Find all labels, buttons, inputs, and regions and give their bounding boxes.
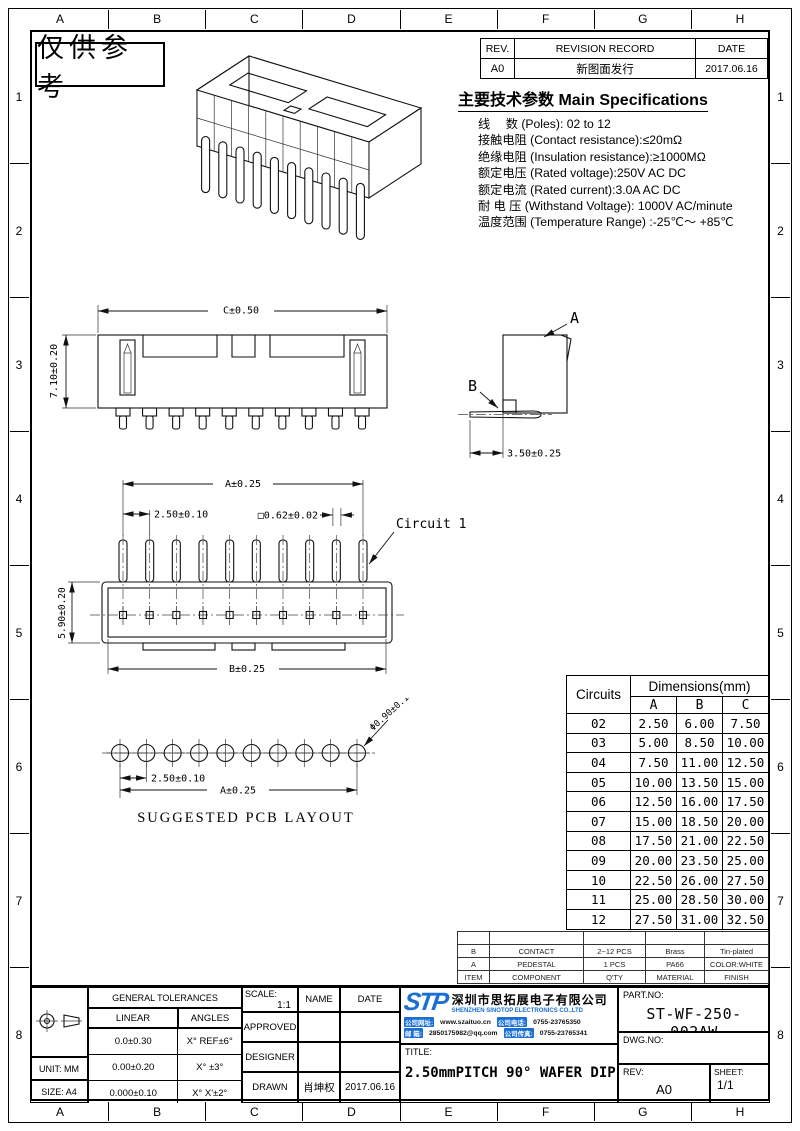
- table-row: 047.5011.0012.50: [567, 753, 769, 773]
- col-bottom-D: D: [303, 1102, 400, 1121]
- contact-squares: [120, 606, 367, 625]
- col-bottom-B: B: [109, 1102, 206, 1121]
- dim-depth: 3.50±0.25: [507, 449, 561, 460]
- bom-row: APEDESTAL1 PCSPA66COLOR:WHITE: [458, 958, 769, 971]
- col-top-H: H: [692, 10, 788, 29]
- table-row: 0920.0023.5025.00: [567, 851, 769, 871]
- company-name-cn: 深圳市思拓展电子有限公司: [452, 991, 608, 1008]
- circuit-label: Circuit 1: [396, 517, 466, 532]
- spec-line-5: 额定电流 (Rated current):3.0A AC DC: [478, 182, 770, 198]
- dim-overall: A±0.25: [225, 479, 261, 490]
- label-b: B: [468, 377, 477, 395]
- record-header: REVISION RECORD: [515, 39, 696, 59]
- tolerance-row: 0.00±0.20X° ±3°: [89, 1055, 241, 1081]
- spec-title: 主要技术参数 Main Specifications: [458, 86, 708, 112]
- table-row: 1227.5031.0032.50: [567, 909, 769, 929]
- row-left-2: 2: [10, 164, 29, 298]
- dimensions-table: Circuits Dimensions(mm) A B C 022.506.00…: [566, 675, 769, 930]
- drawing-sheet: ABCDEFGH ABCDEFGH 12345678 12345678 仅供参考…: [0, 0, 800, 1131]
- dim-body: B±0.25: [229, 664, 265, 675]
- record-value: 新图面发行: [515, 59, 696, 79]
- bom-row: BCONTACT2~12 PCSBrassTin-plated: [458, 945, 769, 958]
- spec-line-7: 温度范围 (Temperature Range) :-25℃～ +85℃: [478, 214, 770, 230]
- dwg-no-cell: DWG.NO:: [618, 1032, 770, 1064]
- table-row: 0612.5016.0017.50: [567, 792, 769, 812]
- table-row: 1125.0028.5030.00: [567, 890, 769, 910]
- email-value: 2850175982@qq.com: [429, 1030, 498, 1037]
- size-cell: SIZE: A4: [30, 1080, 88, 1103]
- rev-header: REV.: [481, 39, 515, 59]
- bom-row: ITEMCOMPONENTQ'TYMATERIALFINISH: [458, 971, 769, 984]
- row-right-1: 1: [771, 30, 790, 164]
- linear-header: LINEAR: [88, 1008, 178, 1028]
- dim-pin-square: □0.62±0.02: [258, 511, 318, 522]
- row-left-7: 7: [10, 834, 29, 968]
- dim-height: 7.10±0.20: [49, 344, 60, 398]
- email-label: 邮 箱:: [404, 1028, 423, 1038]
- front-view-pins: [116, 408, 369, 429]
- side-view: A B 3.50±0.25: [440, 295, 615, 475]
- pcb-layout: 2.50±0.10 A±0.25 Φ0.90±0.10 SUGGESTED PC…: [70, 698, 422, 840]
- row-right-4: 4: [771, 432, 790, 566]
- isometric-view: [175, 48, 445, 246]
- website-value: www.szaituo.cn: [440, 1019, 491, 1026]
- designer-label: DESIGNER: [242, 1042, 298, 1072]
- part-no-label: PART.NO:: [623, 990, 765, 1000]
- sheet-cell: SHEET: 1/1: [710, 1064, 770, 1103]
- scale-cell: SCALE: 1:1: [242, 987, 298, 1012]
- spec-line-2: 接触电阻 (Contact resistance):≤20mΩ: [478, 132, 770, 148]
- col-bottom-E: E: [401, 1102, 498, 1121]
- specifications: 主要技术参数 Main Specifications 线 数 (Poles): …: [458, 86, 770, 231]
- bom-row: [458, 932, 769, 945]
- border-bottom: ABCDEFGH: [12, 1102, 788, 1121]
- dim-pitch: 2.50±0.10: [154, 510, 208, 521]
- row-right-8: 8: [771, 968, 790, 1101]
- date-value: 2017.06.16: [696, 59, 768, 79]
- approved-name: [298, 1012, 340, 1042]
- table-row: 022.506.007.50: [567, 714, 769, 734]
- pcb-overall: A±0.25: [220, 786, 256, 797]
- col-bottom-A: A: [12, 1102, 109, 1121]
- revision-table: REV. REVISION RECORD DATE A0 新图面发行 2017.…: [480, 38, 768, 79]
- tolerance-row: 0.0±0.30X° REF±6°: [89, 1029, 241, 1055]
- tolerance-row: 0.000±0.10X° X'±2°: [89, 1081, 241, 1103]
- col-bottom-H: H: [692, 1102, 788, 1121]
- drawn-date: 2017.06.16: [340, 1072, 400, 1103]
- col-top-D: D: [303, 10, 400, 29]
- approved-date: [340, 1012, 400, 1042]
- part-no-value: ST-WF-250-002AW: [623, 1005, 765, 1032]
- dim-c: C±0.50: [223, 306, 259, 317]
- front-view: C±0.50 7.10±0.20: [40, 293, 400, 445]
- website-label: 公司网址:: [404, 1017, 434, 1027]
- rev-value: A0: [623, 1082, 705, 1097]
- company-logo: STP: [402, 990, 448, 1015]
- date-header: DATE: [340, 987, 400, 1012]
- table-row: 0510.0013.5015.00: [567, 772, 769, 792]
- rev-value: A0: [481, 59, 515, 79]
- row-left-6: 6: [10, 700, 29, 834]
- table-row: 0817.5021.0022.50: [567, 831, 769, 851]
- spec-line-3: 绝缘电阻 (Insulation resistance):≥1000MΩ: [478, 149, 770, 165]
- circuits-header: Circuits: [567, 676, 631, 714]
- tolerances-header: GENERAL TOLERANCES: [88, 987, 242, 1008]
- pcb-holes: [107, 739, 370, 767]
- dim-body-height: 5.90±0.20: [58, 587, 68, 639]
- spec-line-4: 额定电压 (Rated voltage):250V AC DC: [478, 165, 770, 181]
- pcb-caption: SUGGESTED PCB LAYOUT: [137, 810, 355, 826]
- tolerance-rows: 0.0±0.30X° REF±6°0.00±0.20X° ±3°0.000±0.…: [88, 1028, 242, 1103]
- date-header: DATE: [696, 39, 768, 59]
- rev-cell: REV: A0: [618, 1064, 710, 1103]
- row-left-5: 5: [10, 566, 29, 700]
- row-left-8: 8: [10, 968, 29, 1101]
- col-top-G: G: [595, 10, 692, 29]
- pcb-pitch: 2.50±0.10: [151, 774, 205, 785]
- company-name-en: SHENZHEN SINOTOP ELECTRONICS CO.,LTD: [452, 1008, 608, 1014]
- row-right-7: 7: [771, 834, 790, 968]
- table-row: 0715.0018.5020.00: [567, 811, 769, 831]
- table-row: 1022.5026.0027.50: [567, 870, 769, 890]
- spec-lines: 线 数 (Poles): 02 to 12接触电阻 (Contact resis…: [458, 116, 770, 231]
- row-left-1: 1: [10, 30, 29, 164]
- col-b: B: [677, 697, 723, 714]
- reference-only-stamp: 仅供参考: [35, 42, 165, 87]
- row-right-5: 5: [771, 566, 790, 700]
- third-angle-projection-icon: [31, 988, 87, 1054]
- fax-value: 0755-23765341: [540, 1030, 588, 1037]
- approved-label: APPROVED: [242, 1012, 298, 1042]
- col-a: A: [631, 697, 677, 714]
- border-left: 12345678: [10, 30, 29, 1101]
- col-c: C: [723, 697, 769, 714]
- sheet-value: 1/1: [717, 1078, 734, 1092]
- fax-label: 公司传真:: [504, 1028, 534, 1038]
- title-cell: TITLE: 2.50mmPITCH 90° WAFER DIP TYPE: [400, 1044, 618, 1103]
- dimensions-header: Dimensions(mm): [631, 676, 769, 697]
- row-right-3: 3: [771, 298, 790, 432]
- row-left-4: 4: [10, 432, 29, 566]
- spec-line-6: 耐 电 压 (Withstand Voltage): 1000V AC/minu…: [478, 198, 770, 214]
- top-view: A±0.25 2.50±0.10 □0.62±0.02 Circuit 1 5.…: [58, 468, 482, 692]
- col-top-F: F: [498, 10, 595, 29]
- unit-cell: UNIT: MM: [30, 1057, 88, 1080]
- row-right-2: 2: [771, 164, 790, 298]
- designer-name: [298, 1042, 340, 1072]
- part-no-cell: PART.NO: ST-WF-250-002AW: [618, 987, 770, 1032]
- company-cell: STP 深圳市思拓展电子有限公司 SHENZHEN SINOTOP ELECTR…: [400, 987, 618, 1044]
- drawing-title: 2.50mmPITCH 90° WAFER DIP TYPE: [405, 1065, 613, 1081]
- angles-header: ANGLES: [178, 1008, 242, 1028]
- designer-date: [340, 1042, 400, 1072]
- drawn-label: DRAWN: [242, 1072, 298, 1103]
- phone-value: 0755-23765350: [533, 1019, 581, 1026]
- spec-line-1: 线 数 (Poles): 02 to 12: [478, 116, 770, 132]
- name-header: NAME: [298, 987, 340, 1012]
- col-bottom-C: C: [206, 1102, 303, 1121]
- sheet-label: SHEET:: [714, 1067, 744, 1077]
- col-bottom-F: F: [498, 1102, 595, 1121]
- label-a: A: [570, 309, 579, 327]
- row-right-6: 6: [771, 700, 790, 834]
- title-block: UNIT: MM SIZE: A4 GENERAL TOLERANCES LIN…: [30, 985, 770, 1101]
- rev-label: REV:: [623, 1067, 644, 1077]
- border-right: 12345678: [771, 30, 790, 1101]
- bom-table: BCONTACT2~12 PCSBrassTin-platedAPEDESTAL…: [457, 931, 769, 984]
- col-top-C: C: [206, 10, 303, 29]
- title-label: TITLE:: [405, 1047, 613, 1057]
- phone-label: 公司电话:: [497, 1017, 527, 1027]
- drawn-name: 肖坤权: [298, 1072, 340, 1103]
- table-row: 035.008.5010.00: [567, 733, 769, 753]
- pcb-hole-dia: Φ0.90±0.10: [368, 698, 415, 733]
- col-bottom-G: G: [595, 1102, 692, 1121]
- projection-symbol-cell: [30, 987, 88, 1057]
- top-view-pins: [119, 535, 367, 620]
- col-top-E: E: [401, 10, 498, 29]
- row-left-3: 3: [10, 298, 29, 432]
